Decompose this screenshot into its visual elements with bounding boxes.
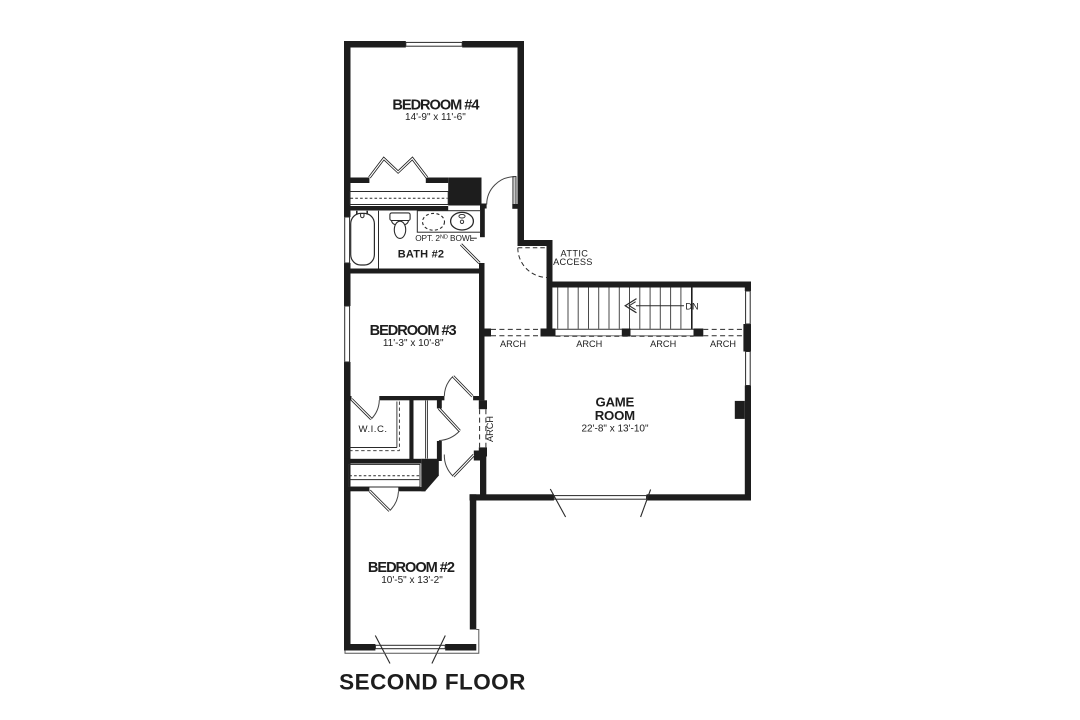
svg-text:DN: DN: [685, 301, 698, 311]
svg-text:BEDROOM #3: BEDROOM #3: [370, 323, 457, 339]
svg-text:SECOND FLOOR: SECOND FLOOR: [339, 670, 526, 695]
svg-text:ARCH: ARCH: [485, 416, 495, 442]
svg-text:14'-9" x 11'-6": 14'-9" x 11'-6": [405, 112, 466, 123]
svg-text:W.I.C.: W.I.C.: [358, 424, 387, 435]
svg-text:22'-8" x 13'-10": 22'-8" x 13'-10": [581, 424, 649, 435]
svg-text:BEDROOM #2: BEDROOM #2: [368, 560, 455, 576]
svg-text:ACCESS: ACCESS: [553, 257, 593, 267]
svg-text:BATH #2: BATH #2: [398, 249, 444, 261]
svg-text:ARCH: ARCH: [710, 339, 736, 349]
svg-text:ARCH: ARCH: [576, 339, 602, 349]
svg-text:BEDROOM #4: BEDROOM #4: [392, 97, 480, 113]
svg-text:10'-5" x 13'-2": 10'-5" x 13'-2": [381, 575, 443, 586]
svg-text:ROOM: ROOM: [595, 408, 635, 423]
svg-text:11'-3" x 10'-8": 11'-3" x 10'-8": [383, 338, 444, 349]
svg-text:ARCH: ARCH: [650, 339, 676, 349]
svg-text:ARCH: ARCH: [500, 339, 526, 349]
